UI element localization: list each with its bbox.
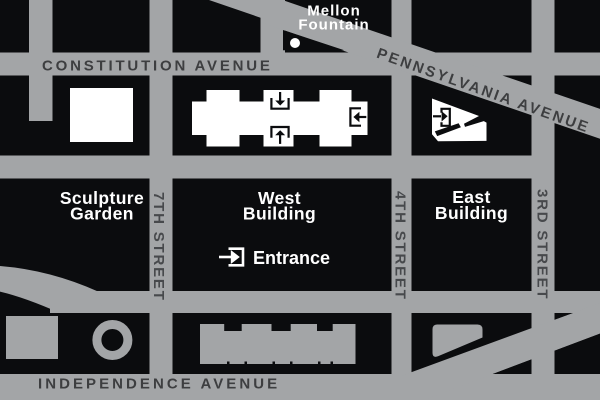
- svg-text:3RD STREET: 3RD STREET: [534, 189, 551, 300]
- svg-text:4TH STREET: 4TH STREET: [392, 191, 409, 301]
- svg-text:INDEPENDENCE AVENUE: INDEPENDENCE AVENUE: [38, 376, 280, 393]
- svg-text:Fountain: Fountain: [298, 17, 369, 34]
- svg-text:Entrance: Entrance: [253, 248, 330, 268]
- svg-text:Building: Building: [435, 203, 508, 223]
- svg-text:Building: Building: [243, 203, 316, 223]
- svg-text:7TH STREET: 7TH STREET: [150, 192, 167, 302]
- svg-text:Garden: Garden: [70, 204, 134, 224]
- svg-text:CONSTITUTION AVENUE: CONSTITUTION AVENUE: [42, 58, 273, 75]
